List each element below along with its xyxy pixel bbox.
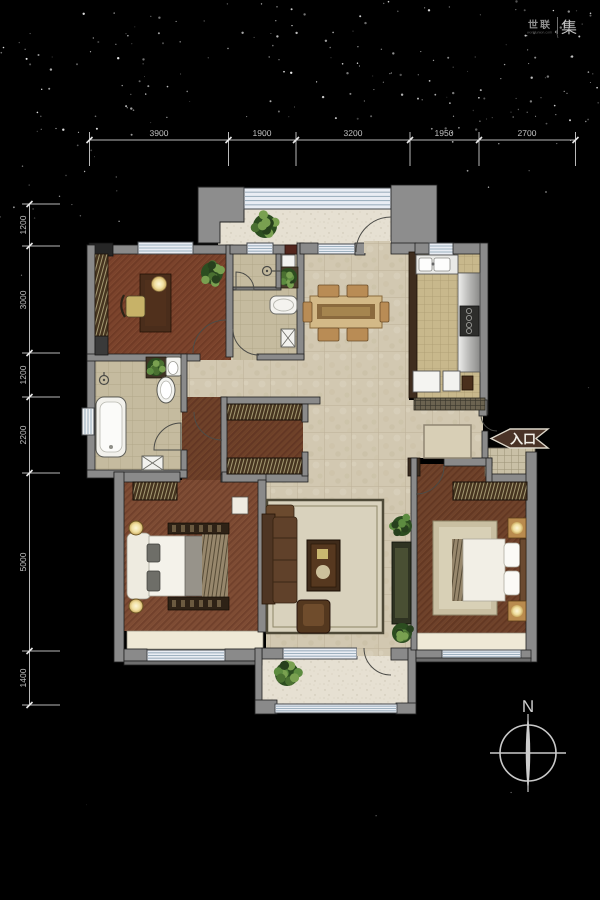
svg-text:世联: 世联: [528, 19, 552, 31]
svg-text:集: 集: [561, 19, 577, 37]
svg-text:2200: 2200: [18, 425, 28, 444]
svg-text:入口: 入口: [510, 432, 536, 447]
svg-text:1900: 1900: [253, 128, 272, 138]
svg-text:worldunion.com: worldunion.com: [527, 31, 552, 35]
svg-text:3900: 3900: [150, 128, 169, 138]
svg-text:2700: 2700: [518, 128, 537, 138]
svg-text:5000: 5000: [18, 552, 28, 571]
svg-text:N: N: [522, 697, 534, 716]
svg-text:1200: 1200: [18, 365, 28, 384]
svg-text:1950: 1950: [435, 128, 454, 138]
svg-text:3000: 3000: [18, 290, 28, 309]
svg-text:1400: 1400: [18, 668, 28, 687]
svg-text:1200: 1200: [18, 215, 28, 234]
svg-text:3200: 3200: [344, 128, 363, 138]
